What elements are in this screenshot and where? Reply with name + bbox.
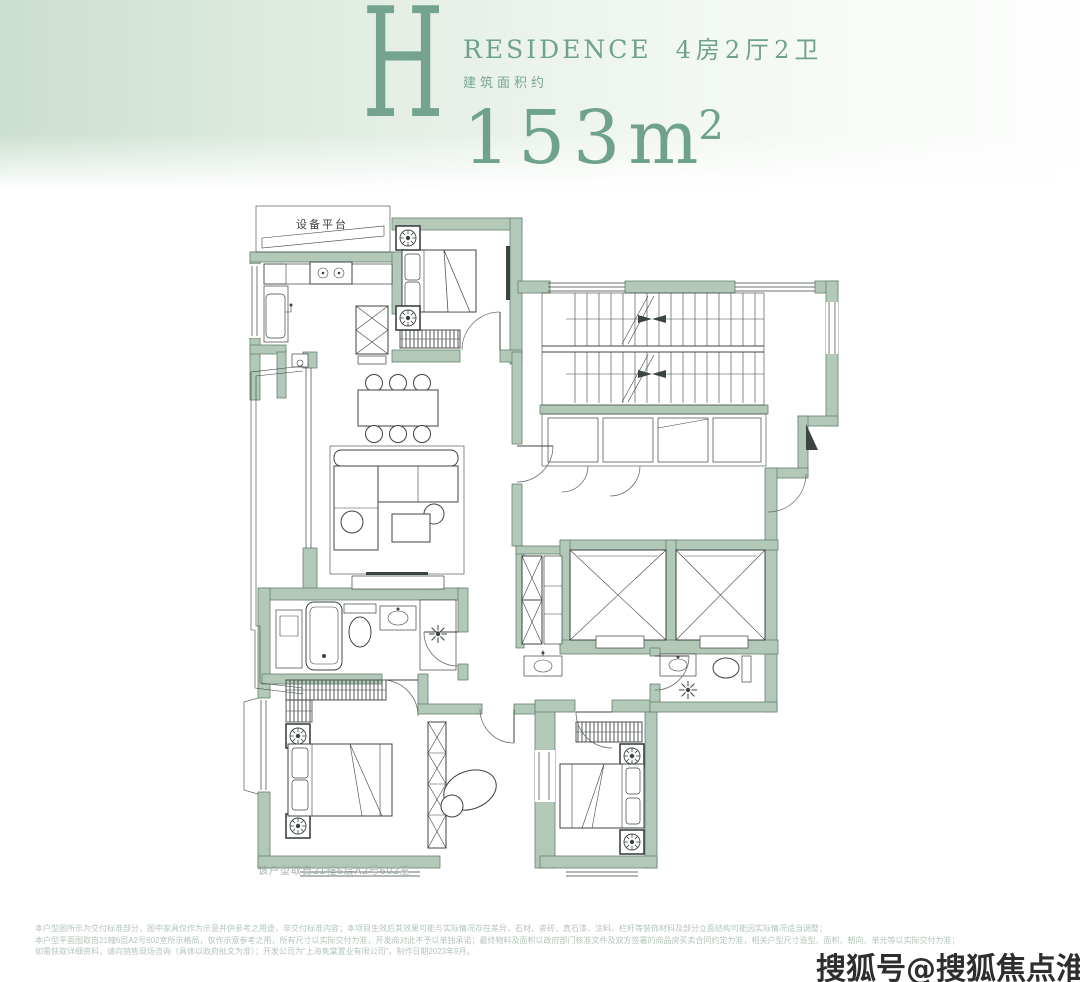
toilet [349, 617, 371, 647]
coffee-table [392, 514, 430, 542]
layout-label: 4房2厅2卫 [676, 36, 824, 64]
shower-head-icon [429, 625, 447, 643]
entry-door [517, 446, 553, 482]
page: H RESIDENCE4房2厅2卫 建筑面积约 153m2 [0, 0, 1080, 982]
bedroom-south [560, 712, 644, 876]
area-unit: m [628, 95, 698, 181]
unit-letter: H [362, 0, 444, 140]
residence-label: RESIDENCE [463, 35, 652, 64]
watermark: 搜狐号@搜狐焦点淮南站 [816, 944, 1080, 982]
fan-coil-icon [396, 306, 420, 330]
living-dining [330, 375, 464, 590]
equipment-platform-label: 设备平台 [296, 217, 348, 231]
header-text-block: RESIDENCE4房2厅2卫 建筑面积约 153m2 [463, 30, 823, 171]
area-prefix: 建筑面积约 [463, 72, 823, 91]
bathroom-main [276, 600, 458, 670]
area-superscript: 2 [698, 103, 723, 149]
service-shafts [522, 556, 562, 644]
bathroom-second [524, 650, 751, 699]
wardrobe [428, 722, 446, 848]
tv [366, 572, 428, 575]
disclaimer-line: 本户型图所示为交付标准部分，图中家具仅作为示意并供参考之用途，非交付标准内容；本… [35, 923, 1049, 935]
bathtub [306, 602, 342, 670]
fan-coil-icon [396, 226, 420, 250]
residence-line: RESIDENCE4房2厅2卫 [463, 30, 823, 65]
sofa [334, 450, 458, 466]
floorplan: 设备平台 [0, 185, 1080, 885]
fan-coil-icon [620, 830, 644, 854]
dining-table [358, 390, 438, 426]
shower-head-icon [679, 681, 697, 699]
area-value: 153 [463, 95, 628, 181]
equipment-platform: 设备平台 [256, 206, 390, 252]
bedroom-top [396, 226, 510, 350]
toilet [713, 658, 739, 678]
header-band: H RESIDENCE4房2厅2卫 建筑面积约 153m2 [0, 0, 1080, 190]
kitchen-sink [266, 294, 285, 338]
fan-coil-icon [286, 814, 310, 838]
area-line: 153m2 [463, 93, 823, 171]
unit-plan-note: 该户型取自21幢6层A2号602室 [258, 862, 411, 877]
tv-console [352, 576, 444, 589]
stove [310, 262, 352, 284]
utility-shaft [356, 306, 388, 354]
